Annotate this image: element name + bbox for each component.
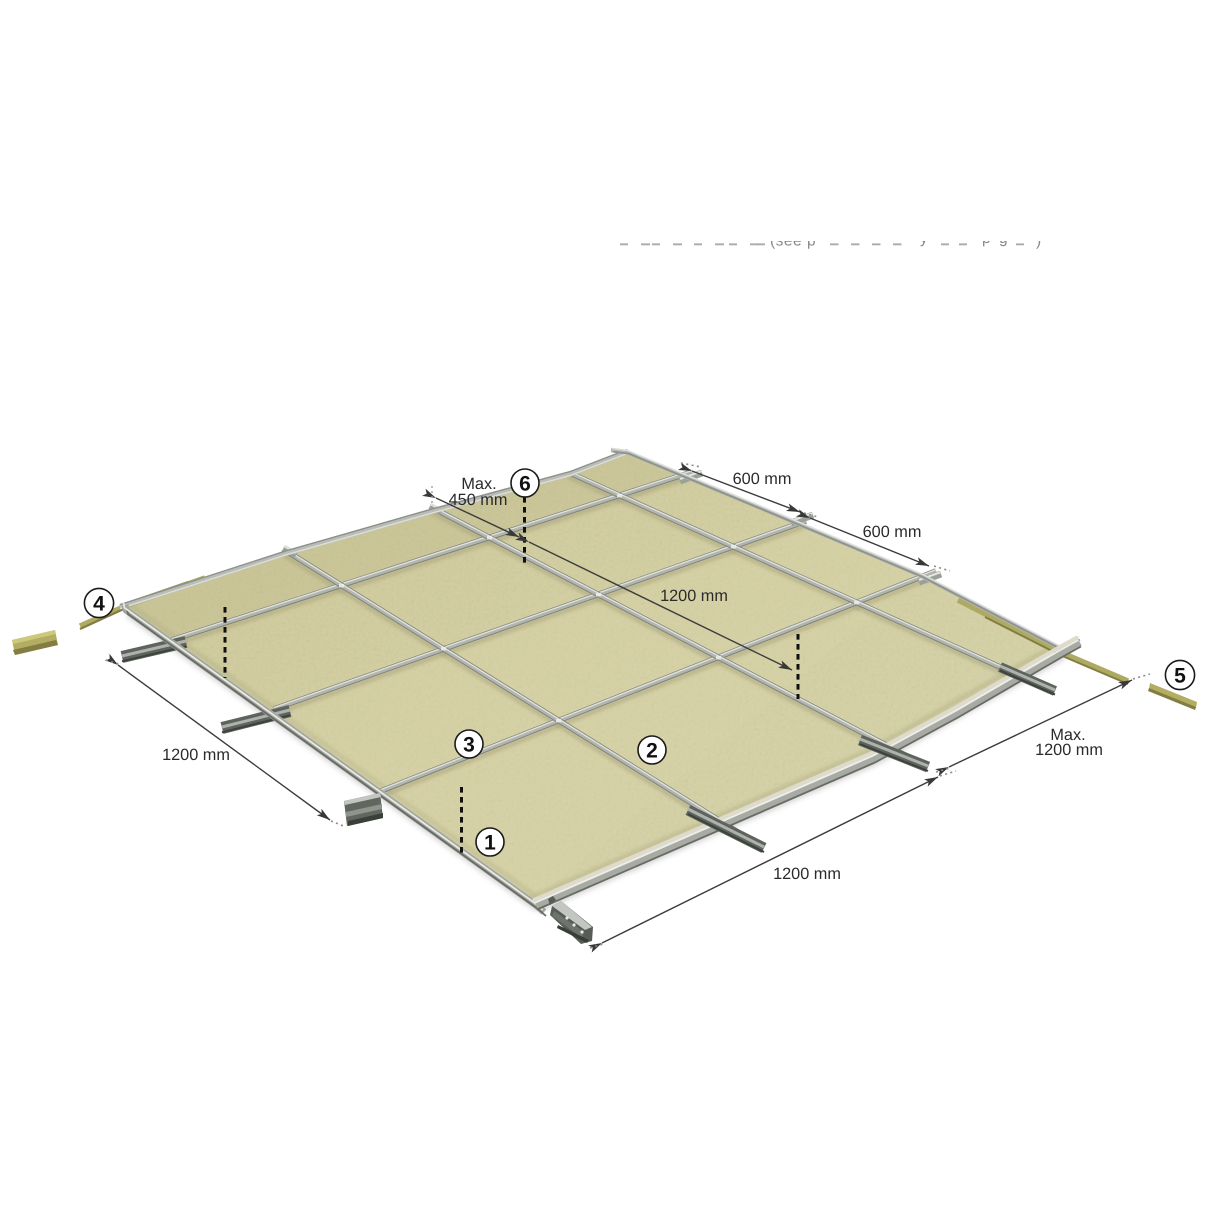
svg-text:600 mm: 600 mm: [863, 523, 922, 541]
svg-text:600 mm: 600 mm: [733, 470, 792, 488]
svg-text:6: 6: [519, 473, 531, 496]
svg-text:3: 3: [463, 734, 475, 757]
svg-text:): ): [1036, 233, 1041, 250]
svg-text:1: 1: [484, 832, 496, 855]
svg-text:1200 mm: 1200 mm: [162, 746, 230, 764]
svg-text:450 mm: 450 mm: [449, 491, 508, 509]
svg-text:4: 4: [93, 593, 105, 616]
svg-text:1200 mm: 1200 mm: [660, 587, 728, 605]
svg-text:1200 mm: 1200 mm: [1035, 741, 1103, 759]
svg-text:p: p: [982, 230, 991, 247]
svg-text:1200 mm: 1200 mm: [773, 865, 841, 883]
svg-text:2: 2: [646, 740, 658, 763]
svg-text:y: y: [920, 230, 928, 247]
svg-text:g: g: [999, 230, 1008, 247]
svg-text:(see p: (see p: [770, 233, 816, 250]
svg-text:5: 5: [1174, 665, 1186, 688]
